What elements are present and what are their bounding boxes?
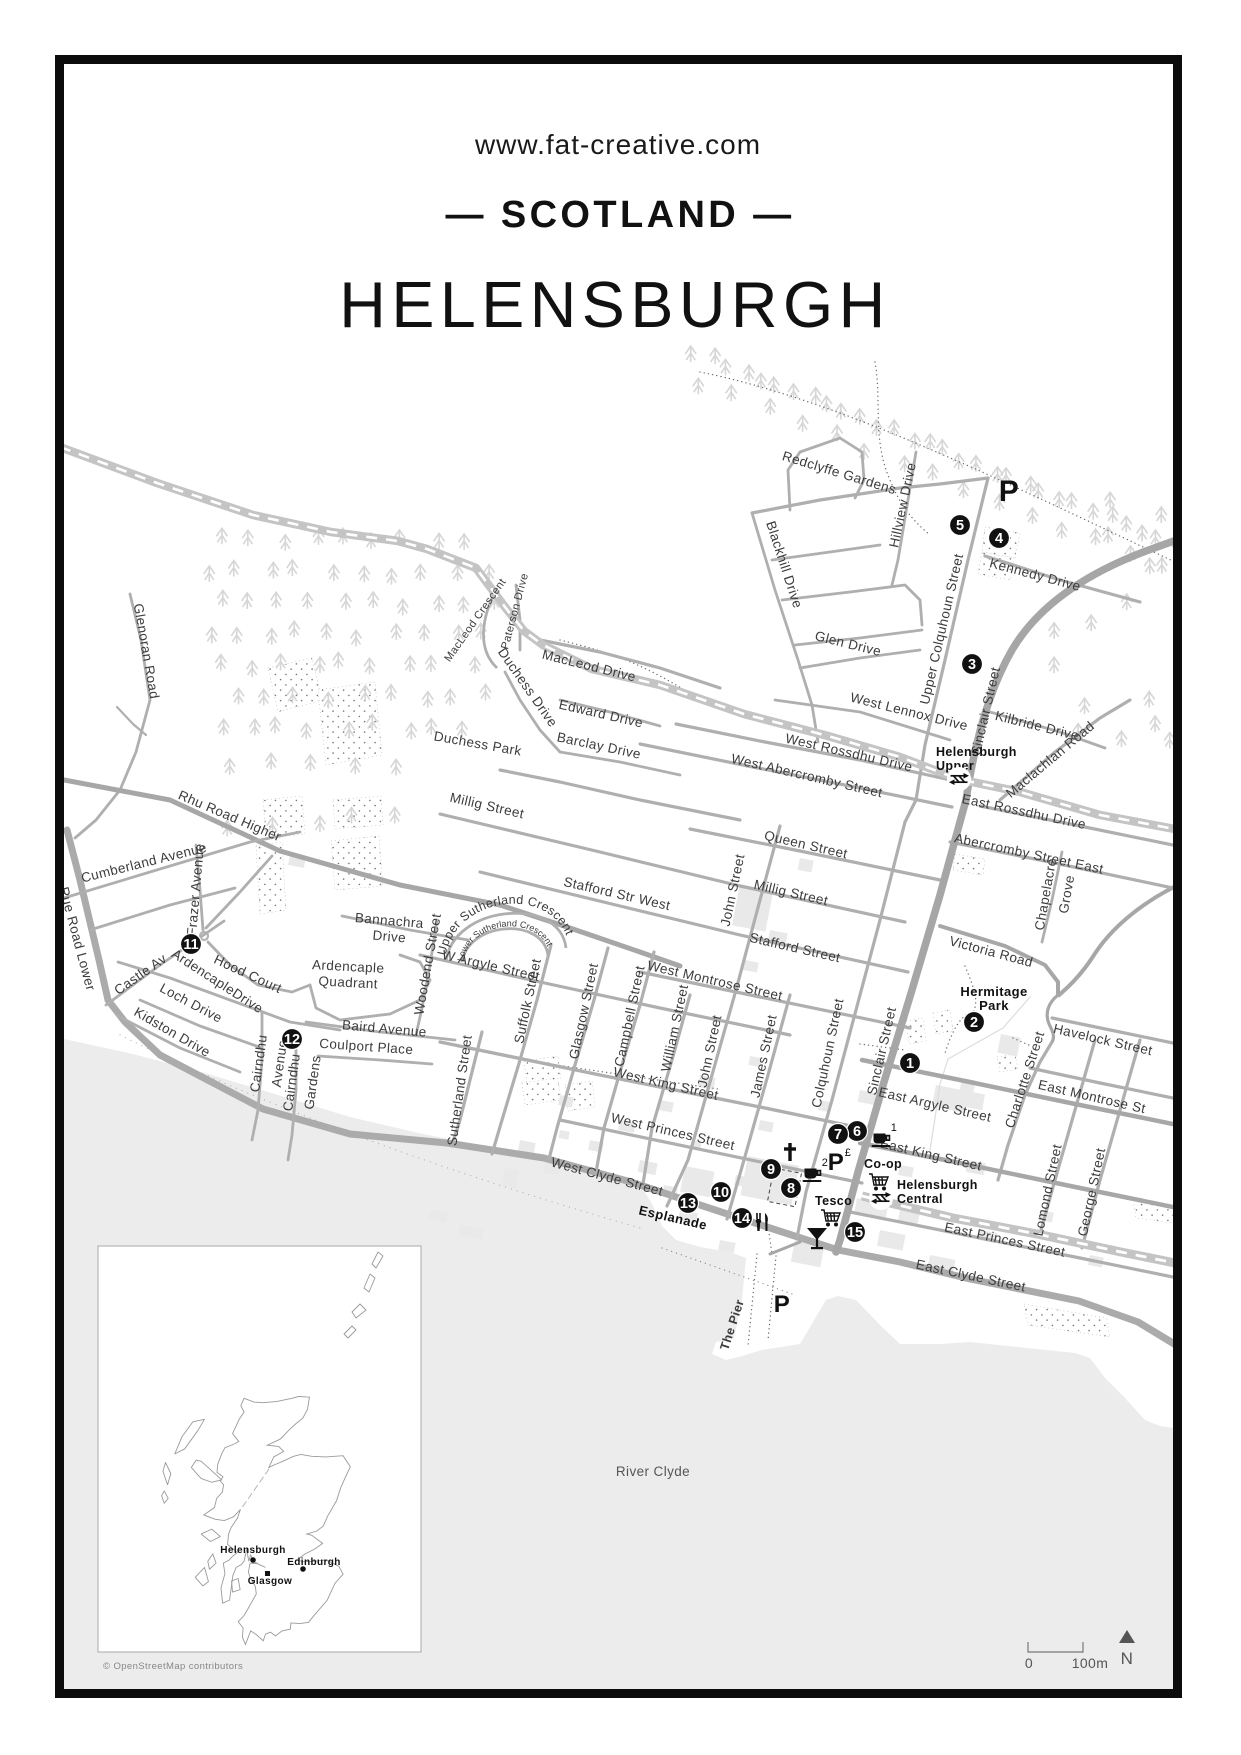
- svg-text:— SCOTLAND —: — SCOTLAND —: [445, 194, 794, 236]
- svg-text:2: 2: [970, 1015, 978, 1031]
- svg-text:www.fat-creative.com: www.fat-creative.com: [474, 129, 761, 160]
- svg-text:Quadrant: Quadrant: [318, 973, 378, 991]
- svg-text:P: P: [774, 1291, 790, 1318]
- svg-text:Central: Central: [897, 1192, 943, 1206]
- svg-text:N: N: [1121, 1649, 1134, 1668]
- svg-text:8: 8: [787, 1181, 795, 1197]
- svg-text:Tesco: Tesco: [815, 1194, 852, 1208]
- svg-text:Drive: Drive: [372, 928, 407, 946]
- svg-text:10: 10: [713, 1185, 729, 1201]
- svg-text:Glasgow: Glasgow: [248, 1576, 292, 1587]
- svg-text:2: 2: [822, 1157, 829, 1169]
- svg-text:Park: Park: [979, 998, 1009, 1013]
- svg-text:100m: 100m: [1072, 1655, 1109, 1671]
- svg-text:Helensburgh: Helensburgh: [220, 1545, 286, 1556]
- svg-text:1: 1: [891, 1122, 898, 1134]
- svg-text:1: 1: [906, 1056, 914, 1072]
- svg-text:Helensburgh: Helensburgh: [936, 745, 1017, 759]
- svg-text:0: 0: [1025, 1655, 1033, 1671]
- svg-text:P: P: [828, 1149, 844, 1176]
- svg-text:River Clyde: River Clyde: [616, 1464, 690, 1479]
- svg-text:© OpenStreetMap contributors: © OpenStreetMap contributors: [103, 1661, 243, 1672]
- svg-text:Helensburgh: Helensburgh: [897, 1178, 978, 1192]
- svg-text:6: 6: [853, 1124, 861, 1140]
- svg-text:9: 9: [767, 1162, 775, 1178]
- svg-text:P: P: [999, 475, 1019, 508]
- svg-text:13: 13: [680, 1196, 696, 1212]
- svg-text:Co-op: Co-op: [864, 1157, 902, 1171]
- svg-text:4: 4: [995, 531, 1003, 547]
- svg-text:7: 7: [834, 1127, 842, 1143]
- svg-text:15: 15: [847, 1225, 863, 1241]
- svg-text:11: 11: [183, 937, 198, 953]
- svg-text:Hermitage: Hermitage: [960, 984, 1027, 999]
- svg-text:£: £: [845, 1147, 852, 1159]
- svg-text:3: 3: [968, 657, 976, 673]
- svg-text:Edinburgh: Edinburgh: [287, 1557, 341, 1568]
- svg-text:14: 14: [734, 1211, 750, 1227]
- svg-text:12: 12: [284, 1032, 300, 1048]
- svg-text:5: 5: [956, 518, 964, 534]
- svg-text:HELENSBURGH: HELENSBURGH: [339, 269, 891, 341]
